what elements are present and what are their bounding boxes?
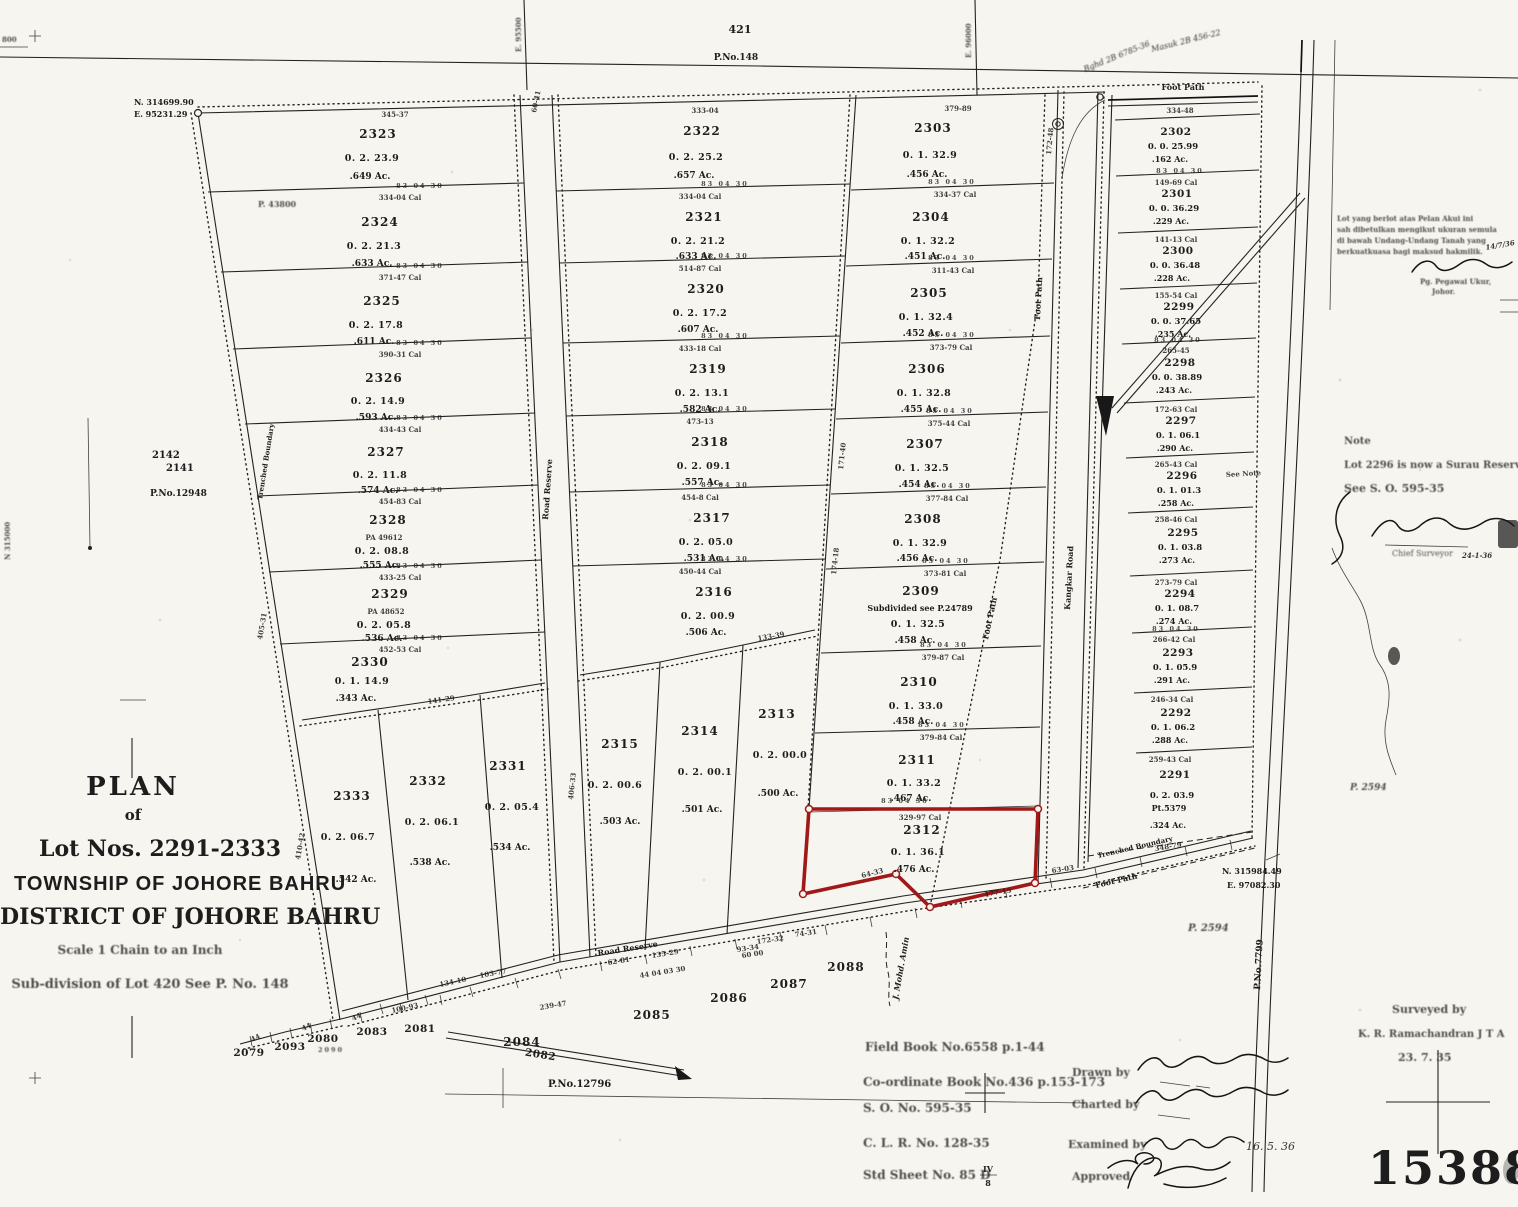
lot-rp: 0. 1. 32.5 [891, 619, 946, 630]
lot-cal: 265-43 Cal [1155, 460, 1198, 469]
malay-sig-place: Johor. [1431, 287, 1455, 296]
lot-cal: 311-43 Cal [932, 266, 975, 275]
lot-number: 2298 [1164, 357, 1195, 369]
lot-number: 2316 [695, 585, 732, 599]
dim: 177-15 [984, 885, 1013, 899]
charted-by-label: Charted by [1072, 1098, 1140, 1111]
dim-top-right: 334-48 [1166, 106, 1193, 115]
approved-signature [1128, 1158, 1230, 1188]
lot-ticks: 83 04 30 [918, 721, 966, 729]
foot-path-road-label: Foot Path [1032, 277, 1044, 321]
lot-ticks: 83 04 30 [1152, 625, 1200, 633]
dim: 406-33 [566, 772, 578, 800]
lot-rp: 0. 2. 17.2 [673, 308, 728, 319]
title-scale: Scale 1 Chain to an Inch [58, 943, 223, 957]
lot-rp: 0. 2. 08.8 [355, 546, 410, 557]
malay-line-3: di bawah Undang-Undang Tanah yang [1337, 236, 1486, 245]
approved-scribble [1108, 1153, 1154, 1168]
lot-ticks: 83 04 30 [881, 797, 929, 805]
lot-acreage: .503 Ac. [600, 817, 641, 827]
grid-northing-left: N 315000 [3, 522, 12, 560]
lot-cal: 379-84 Cal [920, 733, 963, 742]
lot-number: 2300 [1162, 245, 1193, 257]
examined-by-label: Examined by [1068, 1138, 1147, 1151]
lot-cal: 452-53 Cal [379, 645, 422, 654]
lot-rp: 0. 0. 36.29 [1149, 204, 1199, 214]
survey-date: 23. 7. 35 [1398, 1051, 1452, 1064]
lot-cal: 258-46 Cal [1155, 515, 1198, 524]
lot-number: 2305 [910, 286, 947, 300]
chief-surveyor-title: Chief Surveyor [1392, 549, 1453, 558]
lot-ticks: 83 04 30 [926, 407, 974, 415]
lot-rp: 0. 2. 05.4 [485, 802, 540, 813]
lot-number: 2333 [333, 789, 370, 803]
neighbour-lot-2141: 2141 [166, 463, 194, 474]
lot-number: 2297 [1165, 415, 1196, 427]
lot-cal: 265-45 [1162, 346, 1189, 355]
title-township: TOWNSHIP OF JOHORE BAHRU [14, 873, 346, 895]
lot-number: 2312 [903, 823, 940, 837]
lot-acreage: .288 Ac. [1152, 735, 1188, 745]
lot-number: 2083 [356, 1026, 387, 1038]
plan-canvas: 421 P.No.148 E. 95500 E. 96000 800 N 315… [0, 0, 1518, 1207]
lot-number: 2313 [758, 707, 795, 721]
lot-number: 2308 [904, 512, 941, 526]
lot-number: 2291 [1159, 769, 1190, 781]
lot-rp: 0. 2. 05.0 [679, 537, 734, 548]
lot-ticks: 83 04 30 [396, 486, 444, 494]
lot-acreage: .593 Ac. [356, 413, 397, 423]
lot-rp: 0. 1. 33.0 [889, 701, 944, 712]
road-p7799 [1252, 40, 1335, 1192]
lot-number: 2309 [902, 584, 939, 598]
lot-cal: 450-44 Cal [679, 567, 722, 576]
lot-acreage: .258 Ac. [1158, 498, 1194, 508]
plan-number-stamp: 15388 [1368, 1141, 1518, 1195]
lot-ticks: 83 04 30 [701, 180, 749, 188]
lot-number: 2292 [1160, 707, 1191, 719]
lot-acreage: .476 Ac. [894, 865, 935, 875]
scanned-survey-plan: 421 P.No.148 E. 95500 E. 96000 800 N 315… [0, 0, 1518, 1207]
lot-acreage: .162 Ac. [1152, 154, 1188, 164]
dim: 133-39 [757, 629, 786, 643]
lot-cal: 334-04 Cal [679, 192, 722, 201]
lot-ticks: 83 04 30 [396, 339, 444, 347]
lot-cal: 390-31 Cal [379, 350, 422, 359]
foot-path-top-label: Foot Path [1162, 82, 1205, 92]
title-subdivision: Sub-division of Lot 420 See P. No. 148 [11, 977, 288, 992]
road-reserve-west [514, 95, 596, 962]
lot-acreage: .229 Ac. [1153, 216, 1189, 226]
dim-top-left: 345-37 [381, 110, 408, 119]
dim: 63-03 [1051, 863, 1075, 875]
lot-ticks: 83 04 30 [396, 414, 444, 422]
lot-ticks: 83 04 30 [928, 254, 976, 262]
drawn-by-signature [1138, 1054, 1288, 1070]
malay-line-4: berkuatkuasa bagi maksud hakmilik. [1337, 247, 1483, 256]
lot-acreage: .542 Ac. [336, 875, 377, 885]
plan-148-label: P.No.148 [714, 53, 758, 63]
dim: 44 04 03 30 [639, 964, 686, 980]
lot-rp: 0. 2. 00.6 [588, 780, 643, 791]
examined-date: 16. 5. 36 [1246, 1140, 1295, 1153]
title-lot-nos: Lot Nos. 2291-2333 [39, 836, 281, 862]
lot-rp: 0. 2. 14.9 [351, 396, 406, 407]
lot-cal: 373-79 Cal [930, 343, 973, 352]
lot-cal: 454-83 Cal [379, 497, 422, 506]
lot-cal: 334-04 Cal [379, 193, 422, 202]
lot-rp: 0. 1. 06.2 [1151, 723, 1195, 733]
lot-number: 2086 [710, 991, 747, 1005]
lot-number: 2088 [827, 960, 864, 974]
lot-cal: 379-87 Cal [922, 653, 965, 662]
lot-number: 2327 [367, 445, 404, 459]
lot-ticks: 83 04 30 [396, 262, 444, 270]
neighbour-lot-2142: 2142 [152, 450, 180, 461]
lot-number: 2321 [685, 210, 722, 224]
left-column-lot-labels: 345-37 2323 0. 2. 23.9 .649 Ac. 83 04 30… [335, 110, 444, 704]
lot-acreage: .611 Ac. [354, 337, 395, 347]
clr-number-ref: C. L. R. No. 128-35 [863, 1136, 990, 1150]
coordinate-book-ref: Co-ordinate Book No.436 p.153-173 [863, 1075, 1105, 1089]
se-corner-northing: N. 315984.49 [1222, 866, 1282, 876]
lot-acreage: .500 Ac. [758, 789, 799, 799]
lot-number: 2320 [687, 282, 724, 296]
lot-number: 2302 [1160, 126, 1191, 138]
lot-cal: 371-47 Cal [379, 273, 422, 282]
charted-by-signature [1136, 1087, 1288, 1103]
lot-number: 2294 [1164, 588, 1195, 600]
scan-artifacts [69, 89, 1518, 1185]
lot-number: 2085 [633, 1008, 670, 1022]
lot-cal: 172-63 Cal [1155, 405, 1198, 414]
nw-corner-northing: N. 314699.90 [134, 97, 194, 107]
dim: 44 [350, 1010, 363, 1022]
title-district: DISTRICT OF JOHORE BAHRU [0, 904, 380, 930]
lot-subdivided-note: Subdivided see P.24789 [867, 603, 973, 613]
dim: 171-40 [836, 442, 848, 470]
lot-cal: 141-13 Cal [1155, 235, 1198, 244]
plan-43800-label: P. 43800 [258, 199, 297, 209]
lot-rp: 0. 0. 36.48 [1150, 261, 1200, 271]
lot-ticks: 83 04 30 [920, 641, 968, 649]
lot-number: 2328 [369, 513, 406, 527]
lot-number: 2330 [351, 655, 388, 669]
dim: 172-32 [756, 933, 784, 946]
lot-ticks: 83 04 30 [1156, 167, 1204, 175]
lot-number: 2293 [1162, 647, 1193, 659]
lot-421-label: 421 [729, 23, 752, 36]
lot-cal: 377-84 Cal [926, 494, 969, 503]
lot-rp: 0. 0. 37.65 [1151, 317, 1201, 327]
lot-acreage: .243 Ac. [1156, 385, 1192, 395]
lot-acreage: .538 Ac. [410, 858, 451, 868]
lot-cal: 149-69 Cal [1155, 178, 1198, 187]
lot-rp: 0. 2. 03.9 [1150, 791, 1194, 801]
lot-pt: Pt.5379 [1152, 803, 1187, 813]
lot-number: 2319 [689, 362, 726, 376]
trenched-boundary-west-label: Trenched Boundary [255, 422, 276, 500]
lot-rp: 0. 2. 23.9 [345, 153, 400, 164]
lot-acreage: .574 Ac. [358, 486, 399, 496]
lot-number: 2317 [693, 511, 730, 525]
lot-pa: PA 49612 [366, 533, 403, 542]
lot-rp: 0. 1. 01.3 [1157, 486, 1201, 496]
lot-ticks: 83 04 30 [396, 634, 444, 642]
note-block: Note Lot 2296 is now a Surau Reserve. Se… [1332, 436, 1518, 564]
lot-number: 2080 [307, 1033, 338, 1045]
lot-rp: 0. 1. 33.2 [887, 778, 942, 789]
lot-number: 2314 [681, 724, 718, 738]
lot-rp: 0. 1. 14.9 [335, 676, 390, 687]
road-reserve-vertical-label: Road Reserve [540, 459, 554, 520]
lot-rp: 0. 1. 36.1 [891, 847, 946, 858]
lot-cal: 433-18 Cal [679, 344, 722, 353]
lot-rp: 0. 1. 32.9 [893, 538, 948, 549]
lot-cal: 259-43 Cal [1149, 755, 1192, 764]
lot-rp: 0. 1. 08.7 [1155, 604, 1199, 614]
lot-rp: 0. 2. 21.3 [347, 241, 402, 252]
std-sheet-fraction-denominator: 8 [985, 1178, 991, 1188]
dim: 239-47 [539, 998, 568, 1012]
lot-number: 2311 [898, 753, 935, 767]
lot-rp: 0. 1. 03.8 [1158, 543, 1202, 553]
surveyor-name: K. R. Ramachandran J T A [1358, 1029, 1505, 1040]
lot-number: 2322 [683, 124, 720, 138]
lot-cal: 334-37 Cal [934, 190, 977, 199]
lot-rp: 0. 2. 00.0 [753, 750, 808, 761]
middle-bottom-lot-labels: 2315 0. 2. 00.6 .503 Ac. 2314 0. 2. 00.1… [588, 707, 808, 827]
lot-number: 2331 [489, 759, 526, 773]
lot-rp: 0. 2. 00.9 [681, 611, 736, 622]
note-line-1: Lot 2296 is now a Surau Reserve. [1344, 460, 1518, 471]
lot-number: 2301 [1161, 188, 1192, 200]
lot-rp: 0. 1. 32.4 [899, 312, 954, 323]
foot-path-diagonal-label: Foot Path [980, 596, 999, 640]
approved-label: Approved [1071, 1170, 1130, 1183]
lot-acreage: .555 Ac. [360, 561, 401, 571]
lot-ticks: 83 04 30 [701, 252, 749, 260]
lot-ticks: 83 04 30 [701, 555, 749, 563]
lot-rp: 0. 1. 32.2 [901, 236, 956, 247]
lot-rp: 0. 2. 21.2 [671, 236, 726, 247]
lot-number: 2329 [371, 587, 408, 601]
lot-number: 2323 [359, 127, 396, 141]
lot-number: 2324 [361, 215, 398, 229]
lot-rp: 0. 2. 00.1 [678, 767, 733, 778]
scribble-note-1: Bghd 2B 6785-36 [1081, 39, 1151, 74]
lot-rp: 0. 2. 09.1 [677, 461, 732, 472]
dim: 410-42 [293, 832, 307, 861]
malay-line-2: sah dibetulkan mengikut ukuran semula [1337, 225, 1497, 234]
examined-by-signature [1144, 1137, 1244, 1150]
plan-12796-label: P.No.12796 [548, 1079, 611, 1090]
middle-column-lot-labels: 333-04 2322 0. 2. 25.2 .657 Ac. 83 04 30… [669, 106, 749, 638]
dim: 141-29 [427, 693, 455, 706]
lot-acreage: .649 Ac. [350, 172, 391, 182]
lot-rp: 0. 0. 25.99 [1148, 142, 1198, 152]
malay-line-1: Lot yang berlot atas Pelan Akui ini [1337, 214, 1473, 223]
lot-acreage: .273 Ac. [1159, 555, 1195, 565]
lot-cal: 434-43 Cal [379, 425, 422, 434]
lot-number: 2295 [1167, 527, 1198, 539]
lot-cal: 473-13 [686, 417, 713, 426]
lot-acreage: .506 Ac. [686, 628, 727, 638]
highlighted-lot-2312-labels: 2312 0. 1. 36.1 .476 Ac. [891, 823, 946, 875]
lot-rp: 0. 1. 05.9 [1153, 663, 1197, 673]
lot-rp: 0. 1. 32.8 [897, 388, 952, 399]
lot-rp: 0. 0. 38.89 [1152, 373, 1202, 383]
chief-surveyor-signature [1372, 518, 1514, 536]
lot-ticks: 83 04 30 [1154, 336, 1202, 344]
malay-annotation-block: Lot yang berlot atas Pelan Akui ini sah … [1337, 214, 1515, 296]
lot-acreage: .633 Ac. [352, 259, 393, 269]
lot-cal: 266-42 Cal [1153, 635, 1196, 644]
lot-acreage: .534 Ac. [490, 843, 531, 853]
lot-rp: 0. 2. 25.2 [669, 152, 724, 163]
lot-ticks: 83 04 30 [928, 178, 976, 186]
dim: 62-81 [607, 955, 631, 967]
surveyor-credit-block: Surveyed by K. R. Ramachandran J T A 23.… [1358, 1003, 1505, 1064]
lot-cal: 273-79 Cal [1155, 578, 1198, 587]
lot-rp: 0. 1. 32.5 [895, 463, 950, 474]
stream-j-mohd-amin-label: J. Mohd. Amin [890, 936, 911, 1002]
dim: 405-31 [255, 612, 269, 641]
kangkar-road [1046, 92, 1114, 880]
lot-number: 2307 [906, 437, 943, 451]
title-plan: PLAN [86, 772, 180, 802]
lot-rp: 0. 2. 05.8 [357, 620, 412, 631]
lot-number: 2332 [409, 774, 446, 788]
chief-surveyor-date: 24-1-36 [1461, 551, 1492, 560]
lot-ticks: 83 04 30 [922, 557, 970, 565]
lot-acreage: .291 Ac. [1154, 675, 1190, 685]
lot-number: 2081 [404, 1023, 435, 1035]
lot-ticks: 83 04 30 [928, 331, 976, 339]
lot-number: 2079 [233, 1047, 264, 1059]
lot-ticks: 83 04 30 [396, 182, 444, 190]
right-column-lot-labels: 334-48 2302 0. 0. 25.99 .162 Ac. 83 04 3… [1148, 106, 1262, 830]
lot-number: 2315 [601, 737, 638, 751]
note-bracket-mark [1332, 492, 1350, 564]
dim: 172-48 [1044, 127, 1055, 155]
lot-acreage: .228 Ac. [1154, 273, 1190, 283]
grid-easting-left: E. 95500 [514, 17, 523, 52]
lot-number: 2318 [691, 435, 728, 449]
dim: 74-31 [794, 927, 818, 939]
drawn-by-label: Drawn by [1072, 1066, 1130, 1079]
dim-top-mid: 333-04 [691, 106, 718, 115]
lot-number: 2326 [365, 371, 402, 385]
lot-number: 2303 [914, 121, 951, 135]
lot-ticks: 83 04 30 [396, 562, 444, 570]
lot-cal: 329-97 Cal [899, 813, 942, 822]
lot-number: 2304 [912, 210, 949, 224]
left-bottom-lot-labels: 2333 0. 2. 06.7 .542 Ac. 2332 0. 2. 06.1… [321, 759, 540, 885]
lot-number: 2093 [274, 1041, 305, 1053]
lot-number: 2325 [363, 294, 400, 308]
kangkar-road-label: Kangkar Road [1062, 545, 1075, 610]
lot-number: 2299 [1163, 301, 1194, 313]
lot-acreage: .501 Ac. [682, 805, 723, 815]
note-line-2: See S. O. 595-35 [1344, 482, 1444, 495]
dim: 174-18 [829, 547, 841, 575]
lot-ticks: 83 04 30 [701, 405, 749, 413]
scribble-note-2: Masuk 2B 456-22 [1149, 28, 1221, 54]
dim: 60-41 [529, 90, 542, 114]
plan-12948-label: P.No.12948 [150, 489, 207, 499]
see-note-marker: See Note [1226, 468, 1262, 479]
dim: 44 [300, 1020, 313, 1032]
south-road [240, 831, 1255, 1103]
malay-sig-title: Pg. Pegawai Ukur, [1420, 277, 1491, 286]
edge-tick-label: 800 [2, 35, 17, 44]
lot-number: 2296 [1166, 470, 1197, 482]
lot-pa: PA 48652 [368, 607, 405, 616]
lot-number: 2087 [770, 977, 807, 991]
lot-ticks: 83 04 30 [701, 332, 749, 340]
lot-acreage: .324 Ac. [1150, 820, 1186, 830]
lot-cal: 514-87 Cal [679, 264, 722, 273]
road-p7799-label: P.No.7799 [1253, 939, 1266, 990]
plan-2594-b-label: P. 2594 [1349, 783, 1387, 793]
lot-cal: 375-44 Cal [928, 419, 971, 428]
lot-acreage: .290 Ac. [1157, 443, 1193, 453]
lot-cal: 155-54 Cal [1155, 291, 1198, 300]
lot-cal: 373-81 Cal [924, 569, 967, 578]
lot-rp: 0. 1. 06.1 [1156, 431, 1200, 441]
plan-2594-a-label: P. 2594 [1187, 923, 1229, 934]
dim: 44 [249, 1031, 262, 1043]
lot-number: 2090 [318, 1046, 344, 1054]
dim: 103-77 [479, 966, 508, 980]
lot-acreage: .343 Ac. [336, 694, 377, 704]
dim: 100-93 [391, 1000, 420, 1014]
malay-note-date: 14/7/36 [1485, 238, 1516, 252]
field-book-ref: Field Book No.6558 p.1-44 [865, 1040, 1045, 1054]
std-sheet-ref: Std Sheet No. 85 D [863, 1168, 991, 1182]
grid-easting-right: E. 96000 [964, 23, 973, 58]
reference-block: Field Book No.6558 p.1-44 Co-ordinate Bo… [863, 1040, 1105, 1188]
lot-rp: 0. 2. 06.7 [321, 832, 376, 843]
lot-cal: 433-25 Cal [379, 573, 422, 582]
lot-number: 2306 [908, 362, 945, 376]
surveyed-by-label: Surveyed by [1392, 1003, 1467, 1016]
so-number-ref: S. O. No. 595-35 [863, 1101, 972, 1115]
lot-number: 2084 [503, 1035, 540, 1049]
std-sheet-fraction-numerator: IV [983, 1164, 994, 1174]
lot-rp: 0. 2. 11.8 [353, 470, 408, 481]
lot-cal: 246-34 Cal [1151, 695, 1194, 704]
dim-top-midright: 379-89 [944, 104, 971, 113]
malay-note-signature [1412, 260, 1512, 273]
lot-rp: 0. 2. 17.8 [349, 320, 404, 331]
lot-number: 2310 [900, 675, 937, 689]
se-corner-easting: E. 97082.30 [1227, 880, 1281, 890]
nw-corner-easting: E. 95231.29 [134, 109, 188, 119]
lot-rp: 0. 2. 13.1 [675, 388, 730, 399]
lot-cal: 454-8 Cal [681, 493, 719, 502]
lot-rp: 0. 1. 32.9 [903, 150, 958, 161]
lot-rp: 0. 2. 06.1 [405, 817, 460, 828]
lot-ticks: 83 04 30 [924, 482, 972, 490]
midright-column-lot-labels: 379-89 2303 0. 1. 32.9 .456 Ac. 83 04 30… [867, 104, 976, 822]
title-of: of [125, 806, 143, 824]
lot-ticks: 83 04 30 [701, 481, 749, 489]
approvals-block: Drawn by Charted by Examined by 16. 5. 3… [1068, 1054, 1295, 1188]
note-title: Note [1344, 436, 1371, 447]
